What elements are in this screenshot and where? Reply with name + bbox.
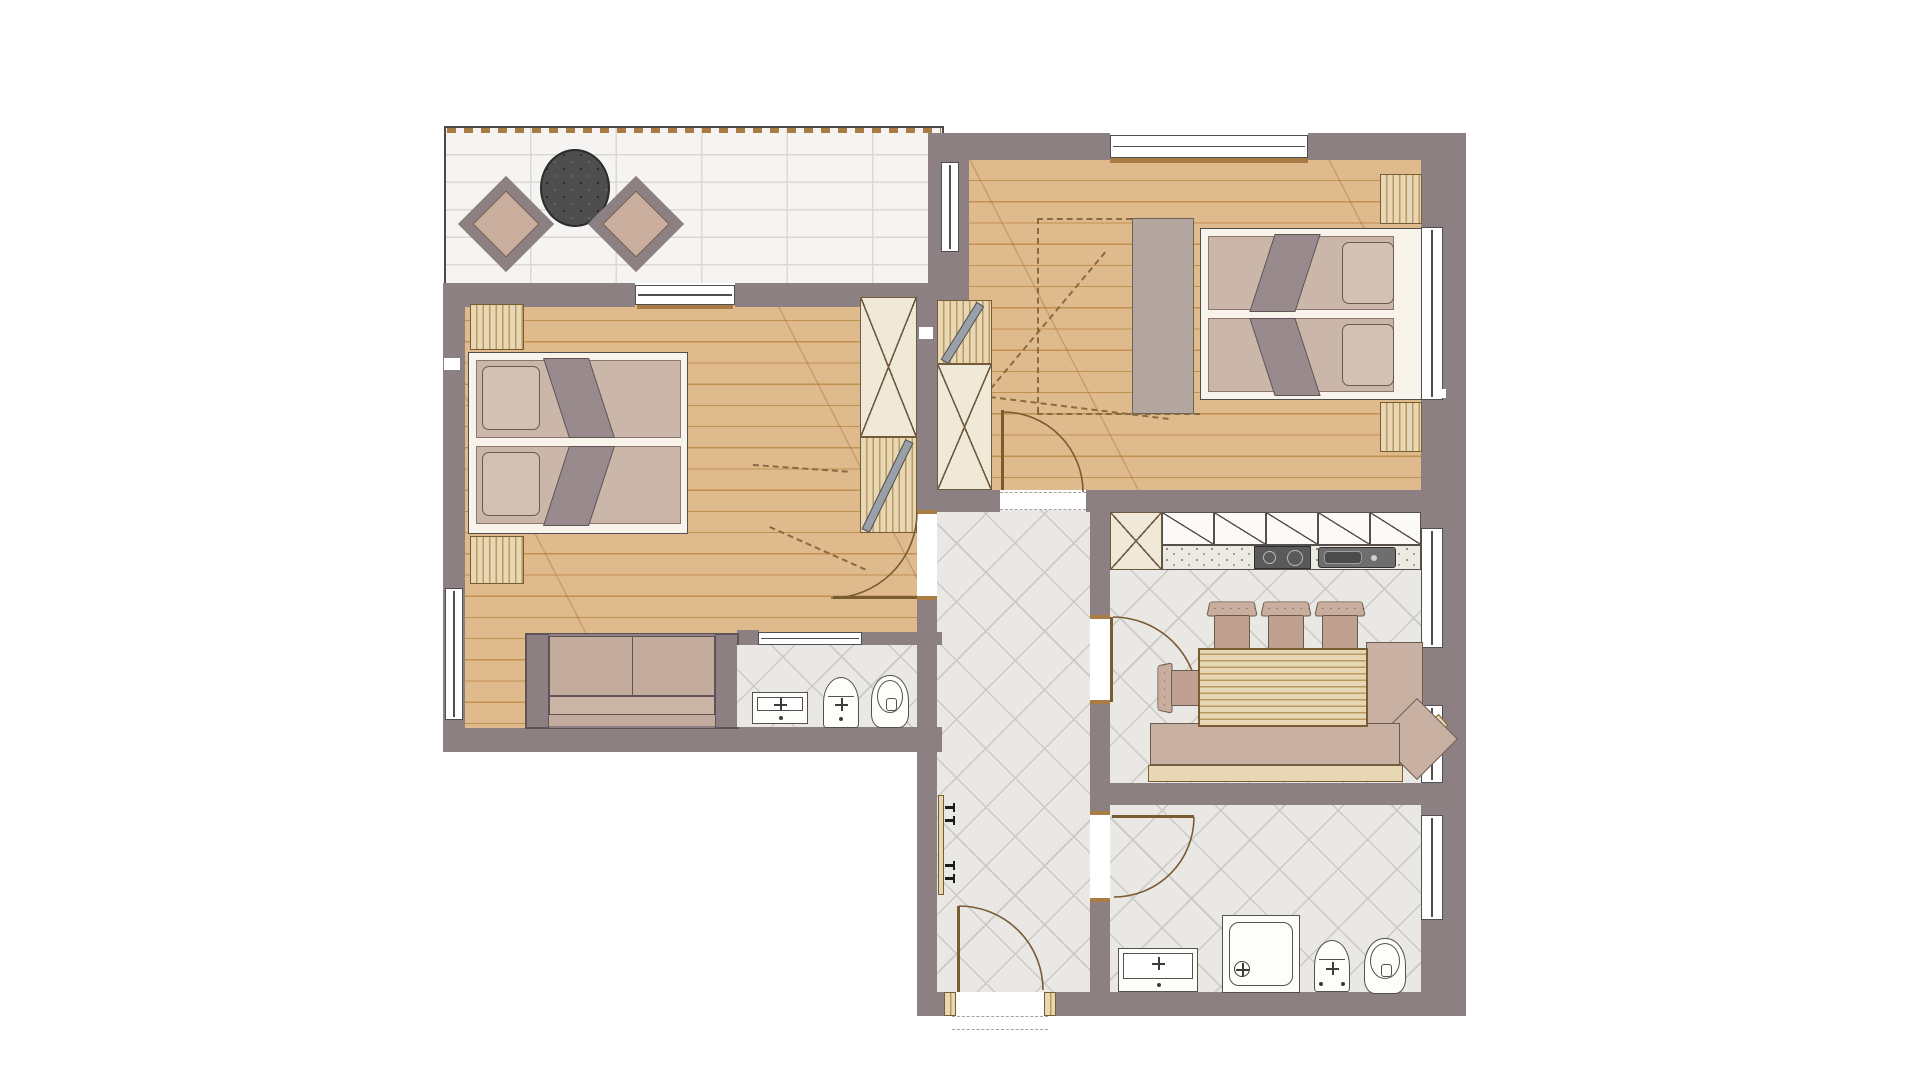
- doorway-bedroom-left: [917, 512, 937, 598]
- entrance-door-swing: [959, 906, 1043, 990]
- bench-platform: [1148, 765, 1403, 782]
- drain-dot: [779, 716, 783, 720]
- window-sill-terrace-left: [637, 305, 733, 309]
- coat-hook-icon: [945, 877, 954, 880]
- bidet-large: [1314, 940, 1350, 992]
- kitchen-upper-cabinet: [1162, 512, 1214, 545]
- coat-hook-icon: [945, 864, 954, 867]
- dining-table: [1198, 648, 1368, 727]
- window-west: [445, 588, 463, 720]
- sideboard-right: [1132, 218, 1194, 414]
- window-east-bathroom: [1421, 815, 1443, 920]
- wall-kitchen-south: [1090, 783, 1466, 805]
- doorway-bathroom-large: [1090, 813, 1110, 900]
- entrance-jamb-left: [944, 992, 956, 1016]
- nightstand-right-bottom: [1380, 402, 1422, 452]
- window-terrace-to-bedroom-left: [635, 285, 735, 305]
- drain-dot: [839, 717, 843, 721]
- sofa-base: [549, 715, 715, 726]
- entrance-threshold: [952, 1016, 1048, 1030]
- door-jamb: [917, 596, 937, 600]
- door-swing-bedroom-right: [1003, 412, 1083, 492]
- wall-bath-small-bottom: [737, 727, 942, 752]
- stove: [1254, 546, 1311, 569]
- nightstand-right-top: [1380, 174, 1422, 224]
- chair-seat: [1268, 615, 1304, 651]
- window-terrace-to-bedroom-right: [941, 162, 959, 252]
- window-east-kitchen-upper: [1421, 528, 1443, 648]
- faucet-icon: [1326, 962, 1339, 975]
- wall-center-divider-north: [917, 283, 937, 512]
- coat-rack: [938, 795, 944, 895]
- drain-dot: [1341, 982, 1345, 986]
- door-jamb: [1090, 811, 1110, 815]
- door-jamb: [1090, 700, 1110, 704]
- chair-seat: [1322, 615, 1358, 651]
- sofa-back-cushions: [549, 636, 715, 696]
- wall-bedroom-right-south-b: [1086, 490, 1421, 512]
- wardrobe-left-shelved: [860, 297, 917, 437]
- slope-line-right-top: [1037, 218, 1132, 220]
- window-sill-north: [1110, 158, 1308, 163]
- washbasin-small: [752, 692, 808, 724]
- kitchen-upper-cabinet: [1318, 512, 1370, 545]
- shower-drain-icon: [1234, 961, 1250, 977]
- faucet-icon: [835, 698, 848, 711]
- wall-bedroom-right-south-a: [937, 490, 1000, 512]
- faucet-icon: [1371, 555, 1377, 561]
- drain-dot: [1157, 983, 1161, 987]
- sink-basin: [1324, 551, 1362, 564]
- drain-dot: [1319, 982, 1323, 986]
- washbasin-large: [1118, 948, 1198, 992]
- entrance-jamb-right: [1044, 992, 1056, 1016]
- kitchen-tall-cabinet: [1110, 512, 1162, 570]
- slope-line-right-vert: [1037, 218, 1039, 413]
- door-swing-bedroom-left: [831, 512, 917, 598]
- wardrobe-right-open: [937, 300, 992, 364]
- toilet-large: [1364, 938, 1406, 994]
- bed-left-pillow-top: [482, 366, 540, 430]
- bed-right-pillow-bottom: [1342, 324, 1394, 386]
- coat-hook-icon: [945, 806, 954, 809]
- dining-chair: [1314, 600, 1366, 652]
- bidet-small: [823, 677, 859, 728]
- clothes-rail-icon: [941, 302, 985, 364]
- wall-bath-small-top-a: [737, 632, 758, 645]
- dining-chair: [1206, 600, 1258, 652]
- terrace-planter-edge: [447, 128, 941, 133]
- kitchen-upper-cabinet: [1214, 512, 1266, 545]
- nightstand-left-top: [470, 304, 524, 350]
- nightstand-left-bottom: [470, 536, 524, 584]
- sofa-arm-left: [526, 634, 549, 728]
- wall-hall-east-a: [1090, 505, 1110, 617]
- burner-icon: [1263, 551, 1276, 564]
- burner-icon: [1287, 550, 1303, 566]
- wall-center-divider-south: [917, 598, 937, 992]
- wall-break-divider: [919, 327, 933, 339]
- floor-plan: [0, 0, 1920, 1080]
- window-bedroom-right-north: [1110, 135, 1308, 158]
- bed-right-pillow-top: [1342, 242, 1394, 304]
- window-bathroom-small-interior: [758, 632, 862, 645]
- door-jamb: [1090, 898, 1110, 902]
- wall-break-west: [444, 358, 460, 370]
- corner-bench-bottom: [1150, 723, 1400, 765]
- dining-chair: [1260, 600, 1312, 652]
- bed-left-pillow-bottom: [482, 452, 540, 516]
- sofa: [525, 633, 739, 729]
- sofa-arm-right: [715, 634, 738, 728]
- door-jamb: [1090, 615, 1110, 619]
- sofa-seat: [549, 696, 715, 715]
- wardrobe-right-shelved: [937, 364, 992, 490]
- doorway-kitchen: [1090, 617, 1110, 702]
- wall-south-west: [443, 728, 759, 752]
- door-swing-bathroom-large: [1114, 817, 1194, 897]
- toilet-small: [871, 675, 909, 728]
- faucet-icon: [1152, 957, 1165, 970]
- wall-south-east: [1044, 992, 1466, 1016]
- shower: [1222, 915, 1300, 993]
- threshold-bedroom-right: [1000, 492, 1086, 510]
- kitchen-sink: [1318, 547, 1396, 568]
- chair-seat: [1214, 615, 1250, 651]
- window-east-bedroom: [1421, 227, 1443, 400]
- kitchen-upper-cabinet: [1370, 512, 1421, 545]
- faucet-icon: [774, 698, 787, 711]
- wall-hall-east-c: [1090, 900, 1110, 992]
- entrance-doorway: [956, 992, 1044, 1016]
- door-jamb: [917, 510, 937, 514]
- wall-break-east: [1437, 389, 1446, 398]
- coat-hook-icon: [945, 819, 954, 822]
- kitchen-upper-cabinet: [1266, 512, 1318, 545]
